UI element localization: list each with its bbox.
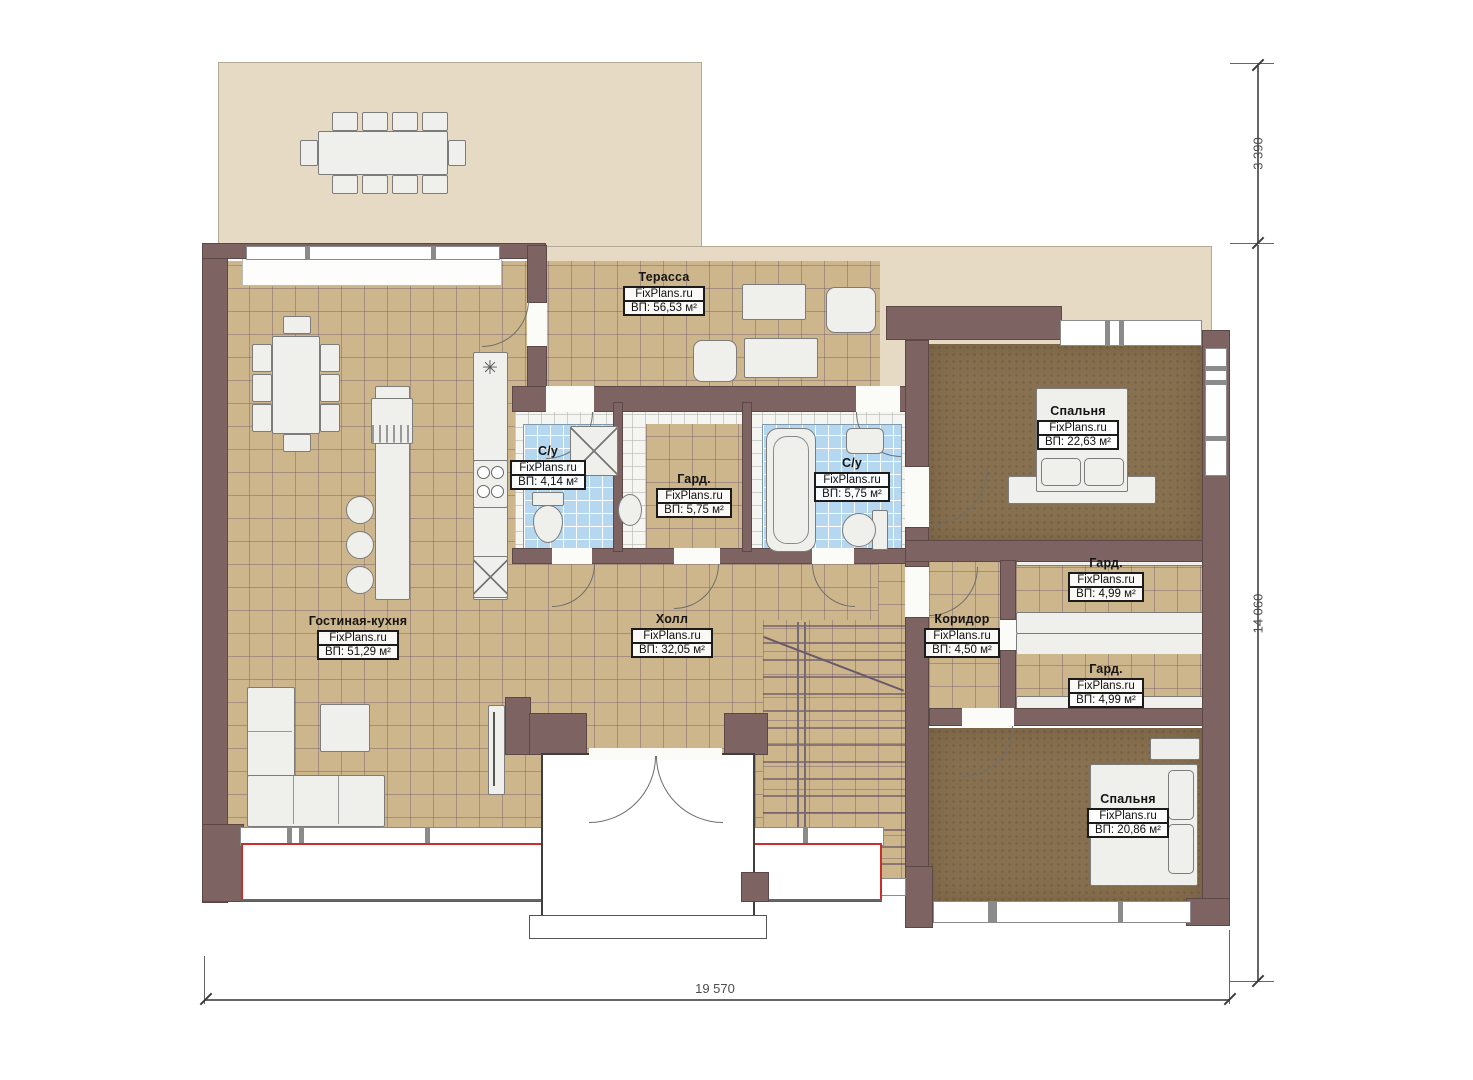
island-appliance [371,398,413,444]
room-label-bedroom-top: Спальня FixPlans.ru ВП: 22,63 м² [1018,404,1138,450]
chair [362,112,388,131]
room-label-box: FixPlans.ru ВП: 51,29 м² [317,630,399,660]
chair [320,374,340,402]
watermark: FixPlans.ru [625,288,703,302]
wall-bedroom-top-block [886,306,1062,340]
terrace-dining-table [318,131,448,175]
room-name: Спальня [1100,792,1155,806]
watermark: FixPlans.ru [633,630,711,644]
room-name: Холл [656,612,688,626]
room-label-box: FixPlans.ru ВП: 5,75 м² [814,472,890,502]
window-bedroom-top-right [1205,348,1227,476]
chair [448,140,466,166]
chair [320,344,340,372]
room-label-box: FixPlans.ru ВП: 4,14 м² [510,460,586,490]
wall-bedroom-bottom-corner [905,866,933,928]
room-name: Терасса [639,270,690,284]
dining-table [272,336,320,434]
room-label-box: FixPlans.ru ВП: 22,63 м² [1037,420,1119,450]
wall-wing-vertical [905,340,929,467]
watermark: FixPlans.ru [512,462,584,476]
wall-corridor-wardrobe [1000,650,1016,714]
terrace-table [742,284,806,320]
room-label-bedroom-bottom: Спальня FixPlans.ru ВП: 20,86 м² [1068,792,1188,838]
wall-bath-divider [613,402,623,552]
sofa-seat [247,775,385,827]
room-label-terrace: Терасса FixPlans.ru ВП: 56,53 м² [604,270,724,316]
wall-bedroom-bottom-corner [1186,898,1230,926]
bed-pillow [1084,458,1124,486]
room-name: С/у [538,444,558,458]
bed-pillow [1041,458,1081,486]
watermark: FixPlans.ru [658,490,730,504]
door-opening [546,386,594,412]
room-area: ВП: 22,63 м² [1039,436,1117,448]
room-label-box: FixPlans.ru ВП: 56,53 м² [623,286,705,316]
shelf-band [1016,612,1204,634]
watermark: FixPlans.ru [1070,574,1142,588]
wall-porch-corner-column [741,872,769,902]
room-label-wardrobe-center: Гард. FixPlans.ru ВП: 5,75 м² [634,472,754,518]
shelf-band [1016,633,1204,655]
terrace-armchair [826,287,876,333]
room-label-wardrobe-right-1: Гард. FixPlans.ru ВП: 4,99 м² [1046,556,1166,602]
wall-living-bottom-corner [202,824,244,902]
wall-corridor-wardrobe [1000,560,1016,620]
chair [332,112,358,131]
appliance-box [473,556,508,598]
room-name: Спальня [1050,404,1105,418]
tv-screen [493,712,495,786]
room-label-wardrobe-right-2: Гард. FixPlans.ru ВП: 4,99 м² [1046,662,1166,708]
chair [362,175,388,194]
chair [392,112,418,131]
room-label-corridor: Коридор FixPlans.ru ВП: 4,50 м² [902,612,1022,658]
room-name: Гард. [1089,662,1123,676]
room-label-bathroom-large: С/у FixPlans.ru ВП: 5,75 м² [792,456,912,502]
window-bedroom-bottom [933,901,1191,923]
door-opening [905,567,929,617]
room-name: С/у [842,456,862,470]
watermark: FixPlans.ru [319,632,397,646]
coffee-table [320,704,370,752]
sink-icon: ✳ [477,356,503,382]
floor-plan: ✳ Терасса FixPlans.ru ВП: 56,53 м² [0,0,1473,1080]
window-sill [242,258,502,286]
sofa-cushion-line [338,776,339,824]
dimension-line-bottom [205,999,1230,1001]
extension-line [1230,63,1274,64]
room-label-box: FixPlans.ru ВП: 20,86 м² [1087,808,1169,838]
extension-line [1230,981,1274,982]
room-area: ВП: 4,99 м² [1070,588,1142,600]
tv-unit [488,705,505,795]
room-label-box: FixPlans.ru ВП: 5,75 м² [656,488,732,518]
bar-stool [346,496,374,524]
sink [846,428,884,454]
wall-porch-top-left [529,713,587,755]
dimension-right: 14 060 [1251,574,1266,654]
wall-left-exterior [202,243,228,903]
room-area: ВП: 4,99 м² [1070,694,1142,706]
room-label-box: FixPlans.ru ВП: 4,50 м² [924,628,1000,658]
room-area: ВП: 20,86 м² [1089,824,1167,836]
room-label-box: FixPlans.ru ВП: 4,99 м² [1068,572,1144,602]
room-area: ВП: 51,29 м² [319,646,397,658]
chair [422,112,448,131]
window-living-top [246,246,500,260]
room-name: Гостиная-кухня [309,614,408,628]
watermark: FixPlans.ru [926,630,998,644]
chair [332,175,358,194]
chair [300,140,318,166]
entrance-step [529,915,767,939]
door-opening [962,708,1014,726]
room-area: ВП: 5,75 м² [816,488,888,500]
room-label-box: FixPlans.ru ВП: 32,05 м² [631,628,713,658]
bar-stool [346,531,374,559]
room-label-box: FixPlans.ru ВП: 4,99 м² [1068,678,1144,708]
room-label-hall: Холл FixPlans.ru ВП: 32,05 м² [612,612,732,658]
chair [422,175,448,194]
dimension-bottom: 19 570 [665,981,765,996]
toilet-bowl [842,513,876,547]
chair [283,434,311,452]
chair [392,175,418,194]
chair [252,404,272,432]
door-opening [527,303,547,346]
wall-wing-vertical [905,617,929,908]
extension-line [1229,930,1230,1004]
room-area: ВП: 32,05 м² [633,644,711,656]
chair [252,344,272,372]
terrace-seat [693,340,737,382]
chair [283,316,311,334]
wall-porch-top-right [724,713,768,755]
sofa-cushion-line [293,776,294,824]
room-area: ВП: 5,75 м² [658,504,730,516]
room-name: Коридор [934,612,989,626]
dimension-top-right: 3 390 [1251,122,1266,186]
watermark: FixPlans.ru [1089,810,1167,824]
dresser [1150,738,1200,760]
room-name: Гард. [1089,556,1123,570]
wall-porch-left-column [505,697,531,755]
room-label-bathroom-small: С/у FixPlans.ru ВП: 4,14 м² [488,444,608,490]
door-opening [812,548,854,564]
wall-terrace-column [527,245,547,303]
door-opening [856,386,900,412]
toilet-tank [532,492,564,506]
room-area: ВП: 4,14 м² [512,476,584,488]
door-opening [552,548,592,564]
sofa-cushion-line [248,731,292,732]
extension-line [1230,243,1274,244]
bar-stool [346,566,374,594]
room-label-living-kitchen: Гостиная-кухня FixPlans.ru ВП: 51,29 м² [298,614,418,660]
terrace-bench [744,338,818,378]
door-opening [674,548,720,564]
room-area: ВП: 4,50 м² [926,644,998,656]
window-bedroom-top [1060,320,1202,346]
chair [252,374,272,402]
room-area: ВП: 56,53 м² [625,302,703,314]
chair [320,404,340,432]
watermark: FixPlans.ru [1070,680,1142,694]
room-name: Гард. [677,472,711,486]
watermark: FixPlans.ru [1039,422,1117,436]
watermark: FixPlans.ru [816,474,888,488]
